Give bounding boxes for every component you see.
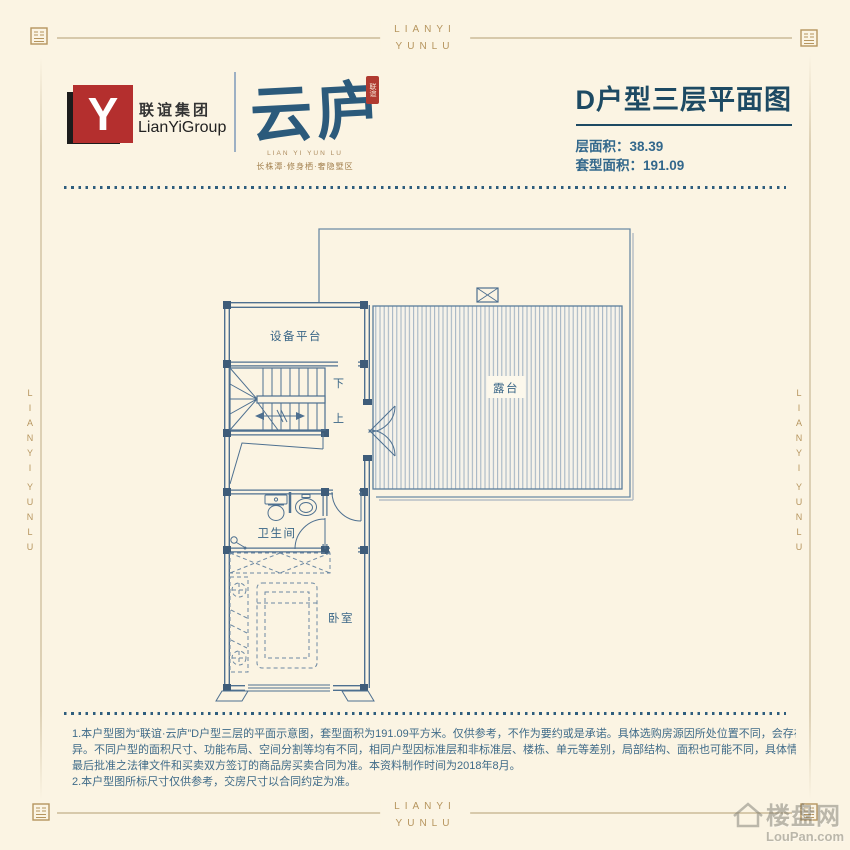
room-label-bathroom: 卫生间 [258,526,297,540]
stat-value: 191.09 [643,158,684,173]
brand-line1: LIANYI [394,21,456,38]
wall-pillars [223,301,372,692]
frame-right-line [809,55,811,800]
floorplan-drawing: 下 上 [200,222,650,714]
toilet-symbol [265,495,287,521]
disclaimer-line: 2.本户型图所标尺寸仅供参考，交房尺寸以合同约定为准。 [72,774,796,790]
brand-pinyin: LIAN YI YUN LU [240,150,370,157]
understair-slope [230,433,323,484]
dotted-separator-top [64,186,786,189]
watermark-cn: 楼盘网 [766,796,841,831]
vent-symbol [477,288,498,302]
interior-walls [227,364,367,550]
brand-seal-text: 联谊 [369,83,376,97]
house-icon [730,798,766,830]
corner-seal-icon [800,29,818,47]
stat-floor-area: 层面积：38.39 [576,137,793,156]
stair-label-down: 下 [333,378,344,390]
corner-seal-icon [30,27,48,45]
disclaimer-text: 1.本户型图为“联谊·云庐”D户型三层的平面示意图，套型面积为191.09平方米… [72,726,796,790]
brand-text-right: LIANYI YUNLU [793,380,805,565]
brand-text-left: LIANYI YUNLU [24,380,36,565]
stair-label-up: 上 [333,412,344,425]
company-name-en: LianYiGroup [138,119,226,137]
window-symbol [248,685,330,691]
stat-value: 38.39 [630,139,664,154]
room-label-equipment-platform: 设备平台 [270,329,322,343]
logo-divider [234,72,236,152]
closet-symbol [230,577,248,672]
floorplan-poster: LIANYI YUNLU LIANYI YUNLU LIANYI YUNLU L… [0,0,850,850]
brand-seal: 联谊 [366,76,379,104]
brand-line1: LIANYI [794,388,804,478]
brand-line2: YUNLU [794,482,804,557]
hall-door [332,492,361,521]
page-title: D户型三层平面图 [576,78,793,126]
stair-arrow-left [255,412,264,420]
logo-letter: Y [88,91,119,137]
company-name-cn: 联谊集团 [139,99,211,120]
brand-line1: LIANYI [394,798,456,815]
brand-text-top: LIANYI YUNLU [380,21,470,55]
disclaimer-line: 最后批准之法律文件和买卖双方签订的商品房买卖合同为准。本资料制作时间为2018年… [72,758,796,774]
room-label-terrace: 露台 [493,381,519,395]
frame-left-line [40,58,42,800]
brand-wordmark: 云庐 [248,59,385,156]
brand-tagline: 长株潭·修身栖·奢隐墅区 [225,161,385,172]
bed-symbol [257,583,317,668]
stat-label: 套型面积： [576,158,644,173]
footing-marks [216,691,374,701]
stair-arrow-right [296,412,305,420]
site-watermark: 楼盘网 LouPan.com [730,796,848,844]
shower-symbol [231,537,246,549]
watermark-en: LouPan.com [766,829,848,844]
area-stats: 层面积：38.39 套型面积：191.09 [576,137,793,175]
title-block: D户型三层平面图 层面积：38.39 套型面积：191.09 [576,78,793,175]
stat-label: 层面积： [576,139,630,154]
disclaimer-line: 异。不同户型的面积尺寸、功能布局、空间分割等均有不同，相同户型因标准层和非标准层… [72,742,796,758]
bathroom-door [295,518,325,549]
brand-text-bottom: LIANYI YUNLU [380,798,470,832]
stat-unit-area: 套型面积：191.09 [576,156,793,175]
brand-line2: YUNLU [394,38,456,55]
wardrobe-symbol [230,553,330,573]
room-label-bedroom: 卧室 [328,611,354,625]
brand-line1: LIANYI [25,388,35,478]
disclaimer-line: 1.本户型图为“联谊·云庐”D户型三层的平面示意图，套型面积为191.09平方米… [72,726,796,742]
brand-line2: YUNLU [25,482,35,557]
logo-monogram: Y [73,85,133,143]
brand-line2: YUNLU [394,815,456,832]
corner-seal-icon [32,803,50,821]
staircase [230,368,325,430]
sink-symbol [296,495,317,516]
